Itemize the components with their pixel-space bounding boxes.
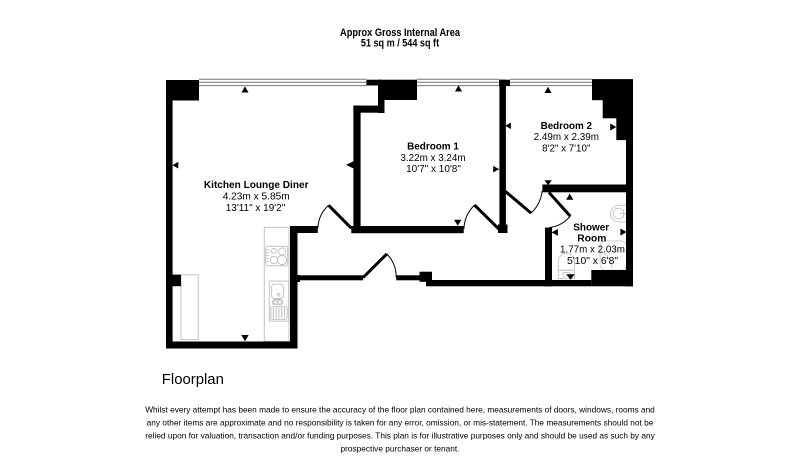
svg-text:Room: Room [577,234,606,245]
svg-text:10'7" x 10'8": 10'7" x 10'8" [406,164,461,175]
svg-text:51 sq m / 544 sq ft: 51 sq m / 544 sq ft [361,37,439,49]
svg-text:Bedroom 2: Bedroom 2 [541,121,593,132]
svg-text:1.77m x 2.03m: 1.77m x 2.03m [560,245,625,256]
svg-text:prospective purchaser or tenan: prospective purchaser or tenant. [341,444,460,454]
svg-text:13'11" x 19'2": 13'11" x 19'2" [226,203,286,214]
svg-text:any other items are approximat: any other items are approximate and no r… [147,418,654,428]
svg-text:4.23m x 5.85m: 4.23m x 5.85m [223,192,290,203]
svg-text:relied upon for valuation, tra: relied upon for valuation, transaction a… [145,431,655,441]
svg-text:Shower: Shower [573,222,609,233]
svg-text:8'2" x 7'10": 8'2" x 7'10" [542,143,591,154]
svg-text:Floorplan: Floorplan [162,372,224,388]
svg-text:3.22m x 3.24m: 3.22m x 3.24m [400,153,465,164]
svg-text:Whilst every attempt has been: Whilst every attempt has been made to en… [145,405,655,415]
svg-text:Kitchen Lounge Diner: Kitchen Lounge Diner [204,180,309,191]
svg-text:Bedroom 1: Bedroom 1 [407,142,459,153]
svg-text:2.49m x 2.39m: 2.49m x 2.39m [534,132,599,143]
svg-text:5'10" x 6'8": 5'10" x 6'8" [567,256,618,267]
